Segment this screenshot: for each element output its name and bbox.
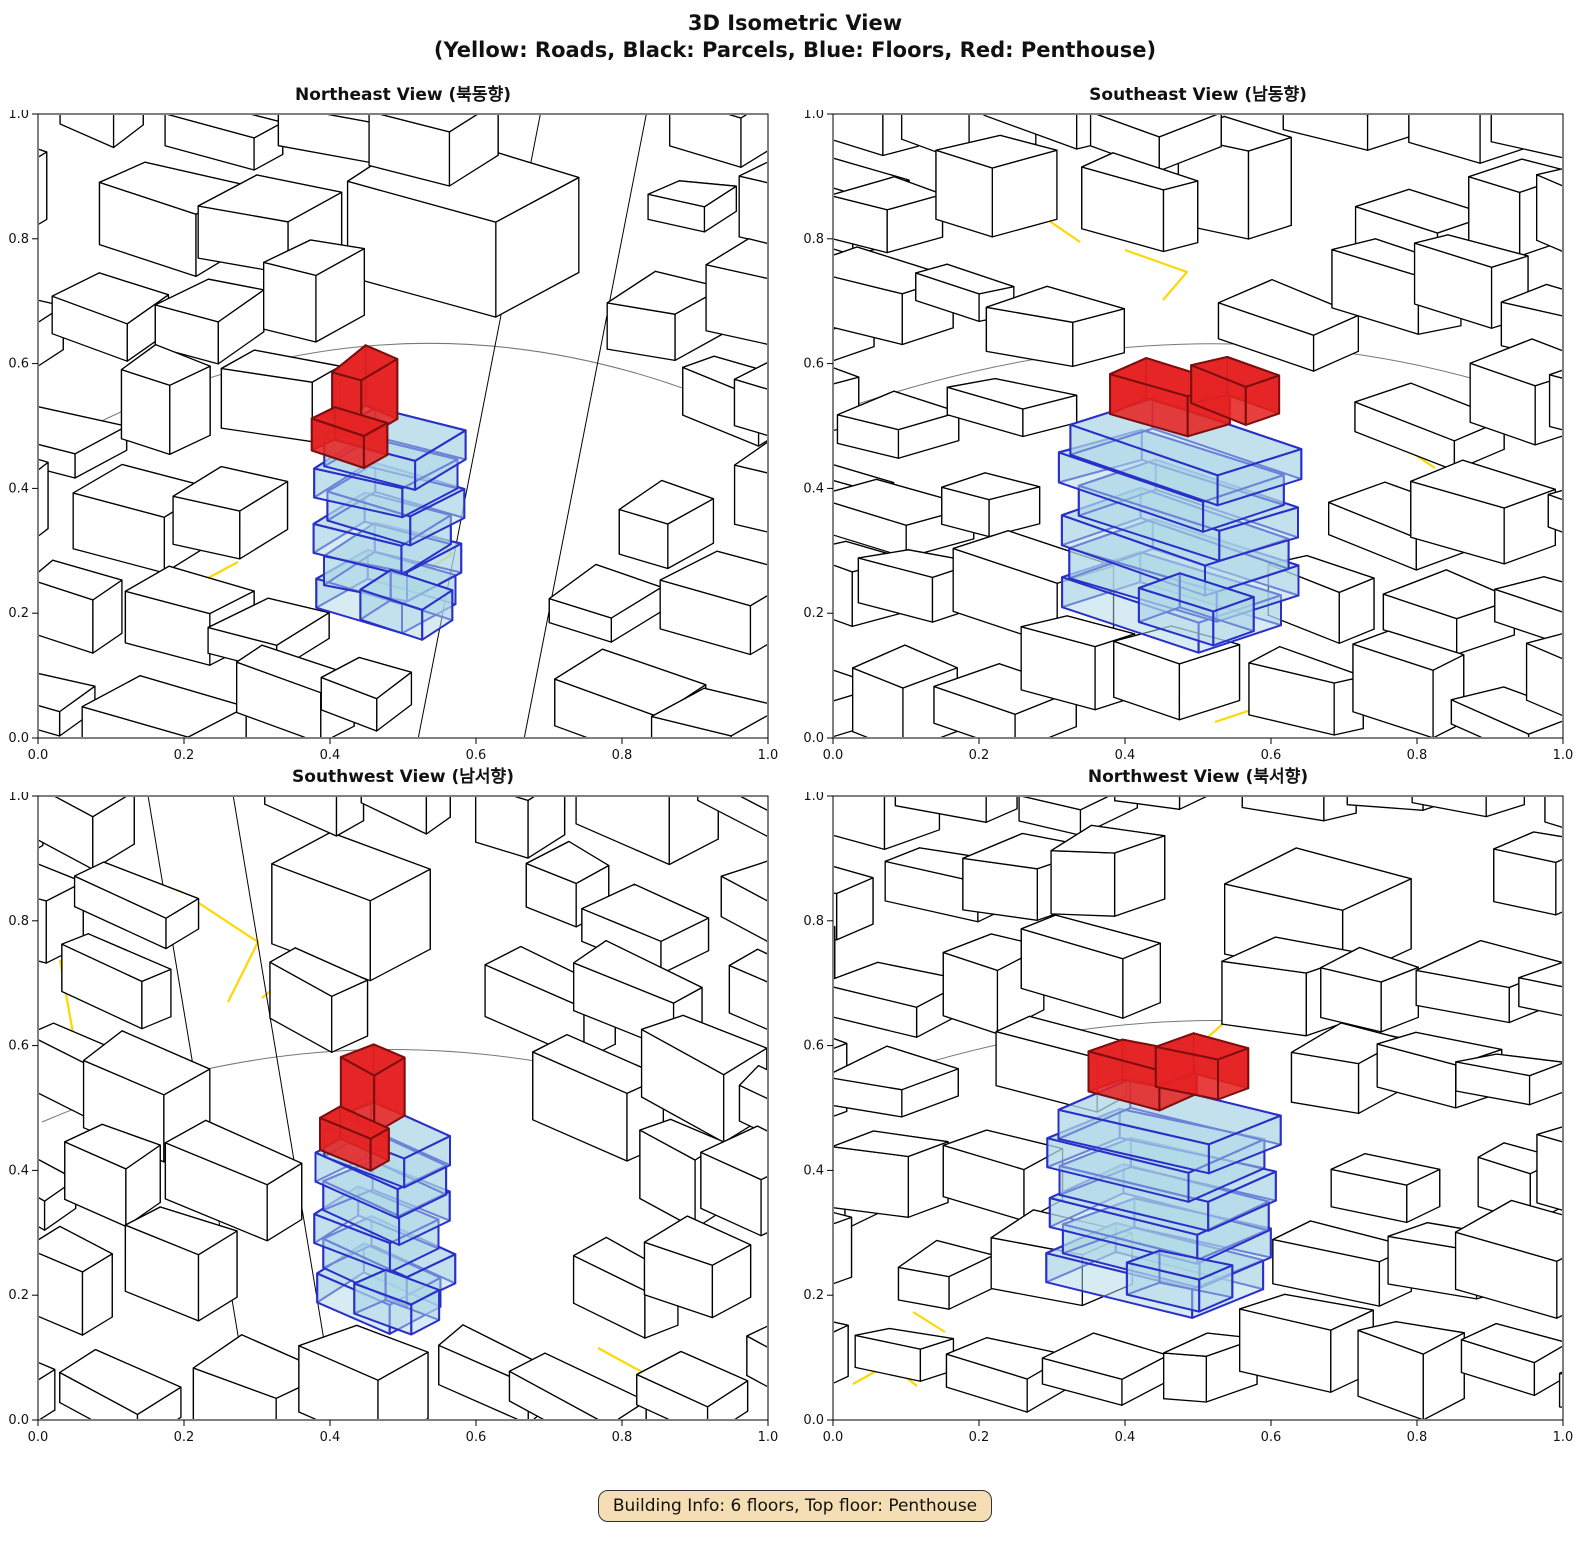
building-floors <box>1046 1079 1280 1318</box>
x-tick-label: 0.2 <box>174 748 195 762</box>
southeast-view-canvas: 0.00.20.40.60.81.00.00.20.40.60.81.0 <box>795 110 1590 762</box>
y-tick-label: 1.0 <box>8 110 29 122</box>
building-floors <box>1059 399 1301 653</box>
x-tick-label: 0.0 <box>823 1430 844 1444</box>
y-tick-label: 0.0 <box>8 731 29 746</box>
y-tick-label: 0.4 <box>8 481 29 496</box>
y-tick-label: 0.0 <box>8 1413 29 1428</box>
x-tick-label: 1.0 <box>1553 748 1574 762</box>
y-tick-label: 0.2 <box>8 1288 29 1303</box>
building-info-badge: Building Info: 6 floors, Top floor: Pent… <box>598 1490 992 1522</box>
subplot-title-northeast: Northeast View (북동향) <box>38 80 768 110</box>
x-tick-label: 0.6 <box>1261 748 1282 762</box>
y-tick-label: 0.8 <box>8 914 29 929</box>
x-tick-label: 0.0 <box>823 748 844 762</box>
subplot-grid: Northeast View (북동향) 0.00.20.40.60.81.00… <box>0 80 1590 1444</box>
y-tick-label: 0.8 <box>8 232 29 247</box>
y-tick-label: 0.2 <box>803 1288 824 1303</box>
y-axis-ticks: 0.00.20.40.60.81.0 <box>803 792 833 1428</box>
x-tick-label: 0.0 <box>28 748 49 762</box>
northwest-view-canvas: 0.00.20.40.60.81.00.00.20.40.60.81.0 <box>795 792 1590 1444</box>
y-tick-label: 0.8 <box>803 232 824 247</box>
y-tick-label: 1.0 <box>803 792 824 804</box>
y-tick-label: 0.2 <box>8 606 29 621</box>
subplot-southwest-view: Southwest View (남서향) 0.00.20.40.60.81.00… <box>0 762 795 1444</box>
figure: 3D Isometric View (Yellow: Roads, Black:… <box>0 0 1590 1560</box>
figure-title: 3D Isometric View <box>0 10 1590 37</box>
x-axis-ticks: 0.00.20.40.60.81.0 <box>28 738 779 762</box>
x-tick-label: 0.8 <box>612 1430 633 1444</box>
figure-footer: Building Info: 6 floors, Top floor: Pent… <box>0 1490 1590 1522</box>
subplot-southeast-view: Southeast View (남동향) 0.00.20.40.60.81.00… <box>795 80 1590 762</box>
x-tick-label: 0.4 <box>1115 748 1136 762</box>
figure-header: 3D Isometric View (Yellow: Roads, Black:… <box>0 0 1590 64</box>
x-tick-label: 0.2 <box>174 1430 195 1444</box>
x-axis-ticks: 0.00.20.40.60.81.0 <box>823 738 1574 762</box>
y-tick-label: 0.2 <box>803 606 824 621</box>
y-tick-label: 0.6 <box>803 1039 824 1054</box>
x-axis-ticks: 0.00.20.40.60.81.0 <box>823 1420 1574 1444</box>
x-tick-label: 0.6 <box>466 748 487 762</box>
y-axis-ticks: 0.00.20.40.60.81.0 <box>803 110 833 746</box>
y-axis-ticks: 0.00.20.40.60.81.0 <box>8 792 38 1428</box>
x-tick-label: 1.0 <box>758 748 779 762</box>
northeast-view-canvas: 0.00.20.40.60.81.00.00.20.40.60.81.0 <box>0 110 795 762</box>
y-tick-label: 0.4 <box>803 481 824 496</box>
x-tick-label: 0.2 <box>969 1430 990 1444</box>
x-tick-label: 0.8 <box>1407 748 1428 762</box>
y-tick-label: 0.4 <box>803 1163 824 1178</box>
x-axis-ticks: 0.00.20.40.60.81.0 <box>28 1420 779 1444</box>
y-tick-label: 0.8 <box>803 914 824 929</box>
subplot-northwest-view: Northwest View (북서향) 0.00.20.40.60.81.00… <box>795 762 1590 1444</box>
y-axis-ticks: 0.00.20.40.60.81.0 <box>8 110 38 746</box>
x-tick-label: 0.0 <box>28 1430 49 1444</box>
x-tick-label: 0.4 <box>320 748 341 762</box>
x-tick-label: 0.6 <box>1261 1430 1282 1444</box>
subplot-title-northwest: Northwest View (북서향) <box>833 762 1563 792</box>
y-tick-label: 0.4 <box>8 1163 29 1178</box>
y-tick-label: 0.0 <box>803 731 824 746</box>
figure-legend-subtitle: (Yellow: Roads, Black: Parcels, Blue: Fl… <box>0 37 1590 64</box>
x-tick-label: 0.8 <box>612 748 633 762</box>
x-tick-label: 0.2 <box>969 748 990 762</box>
y-tick-label: 0.0 <box>803 1413 824 1428</box>
y-tick-label: 1.0 <box>8 792 29 804</box>
x-tick-label: 0.4 <box>1115 1430 1136 1444</box>
x-tick-label: 0.6 <box>466 1430 487 1444</box>
y-tick-label: 1.0 <box>803 110 824 122</box>
y-tick-label: 0.6 <box>8 1039 29 1054</box>
subplot-title-southwest: Southwest View (남서향) <box>38 762 768 792</box>
x-tick-label: 1.0 <box>1553 1430 1574 1444</box>
southwest-view-canvas: 0.00.20.40.60.81.00.00.20.40.60.81.0 <box>0 792 795 1444</box>
x-tick-label: 0.8 <box>1407 1430 1428 1444</box>
subplot-title-southeast: Southeast View (남동향) <box>833 80 1563 110</box>
y-tick-label: 0.6 <box>8 357 29 372</box>
y-tick-label: 0.6 <box>803 357 824 372</box>
x-tick-label: 0.4 <box>320 1430 341 1444</box>
x-tick-label: 1.0 <box>758 1430 779 1444</box>
subplot-northeast-view: Northeast View (북동향) 0.00.20.40.60.81.00… <box>0 80 795 762</box>
